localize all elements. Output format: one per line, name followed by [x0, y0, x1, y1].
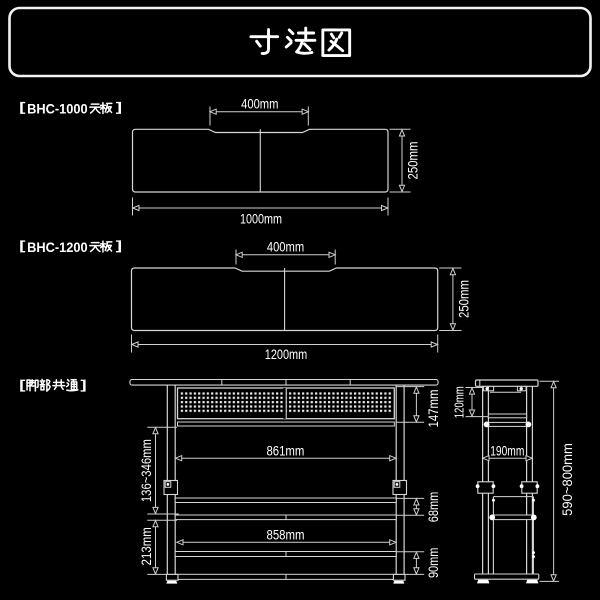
svg-text:861mm: 861mm	[266, 443, 304, 458]
svg-text:120mm: 120mm	[451, 386, 466, 418]
svg-text:400mm: 400mm	[241, 96, 278, 111]
svg-text:147mm: 147mm	[426, 390, 441, 428]
svg-text:BHC-1200: BHC-1200	[27, 239, 88, 255]
svg-text:213mm: 213mm	[139, 527, 154, 565]
svg-text:250mm: 250mm	[456, 280, 471, 318]
svg-text:90mm: 90mm	[426, 548, 441, 579]
svg-text:190mm: 190mm	[490, 443, 524, 458]
svg-text:400mm: 400mm	[267, 239, 304, 254]
svg-text:858mm: 858mm	[267, 528, 305, 543]
svg-text:BHC-1000: BHC-1000	[27, 101, 88, 117]
svg-text:1200mm: 1200mm	[265, 347, 308, 362]
svg-text:250mm: 250mm	[405, 142, 420, 180]
svg-text:1000mm: 1000mm	[240, 212, 282, 227]
svg-text:136~346mm: 136~346mm	[139, 439, 154, 502]
svg-text:590~800mm: 590~800mm	[560, 443, 575, 516]
svg-text:68mm: 68mm	[426, 492, 441, 523]
